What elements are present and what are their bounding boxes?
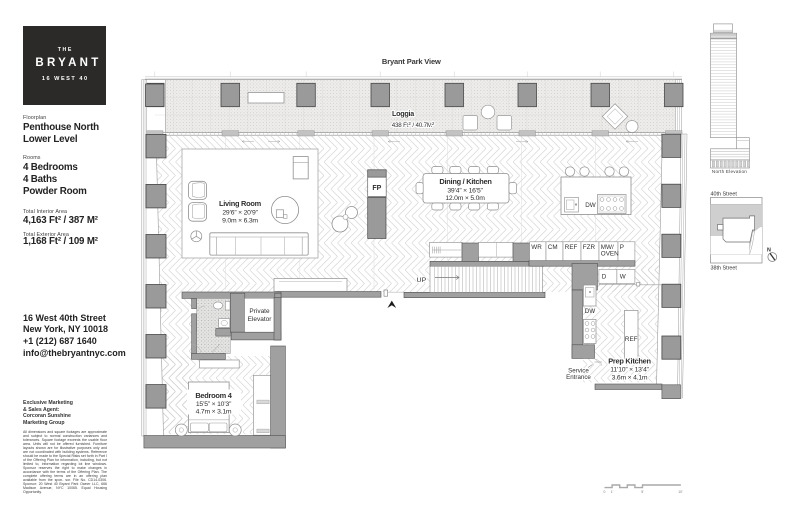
svg-text:11’10” × 13’4”: 11’10” × 13’4” (610, 367, 649, 374)
svg-text:Bryant Park View: Bryant Park View (382, 57, 441, 66)
svg-text:38th Street: 38th Street (711, 266, 738, 272)
svg-text:Dining / Kitchen: Dining / Kitchen (439, 177, 492, 186)
svg-text:REF: REF (625, 336, 638, 343)
svg-text:5’: 5’ (641, 490, 644, 494)
svg-text:0: 0 (604, 490, 606, 494)
svg-text:40th Street: 40th Street (711, 191, 738, 197)
svg-text:4.7m × 3.1m: 4.7m × 3.1m (196, 408, 232, 415)
svg-text:12.0m × 5.0m: 12.0m × 5.0m (445, 195, 485, 202)
svg-text:P: P (620, 244, 624, 251)
svg-text:Prep Kitchen: Prep Kitchen (608, 356, 651, 365)
svg-text:FP: FP (372, 185, 381, 192)
svg-text:DW: DW (585, 308, 596, 315)
svg-text:1’: 1’ (611, 490, 614, 494)
svg-text:Entrance: Entrance (566, 374, 591, 381)
svg-text:9.0m × 6.3m: 9.0m × 6.3m (222, 218, 258, 225)
svg-text:W: W (620, 274, 626, 281)
svg-text:D: D (602, 274, 607, 281)
svg-text:OVEN: OVEN (601, 251, 619, 258)
svg-text:Elevator: Elevator (248, 316, 273, 323)
svg-text:Living Room: Living Room (219, 199, 262, 208)
svg-text:N: N (767, 248, 771, 254)
svg-text:Private: Private (249, 308, 270, 315)
svg-text:DW: DW (585, 202, 596, 209)
svg-text:REF: REF (565, 244, 578, 251)
svg-text:WR: WR (531, 244, 542, 251)
svg-text:39’4” × 16’5”: 39’4” × 16’5” (447, 188, 483, 195)
svg-text:Bedroom 4: Bedroom 4 (195, 391, 232, 400)
svg-text:15’5” × 10’3”: 15’5” × 10’3” (196, 401, 232, 408)
svg-text:CM: CM (548, 244, 558, 251)
svg-text:29’6” × 20’9”: 29’6” × 20’9” (222, 209, 258, 216)
svg-text:10’: 10’ (678, 490, 683, 494)
svg-text:UP: UP (416, 277, 426, 284)
svg-text:Loggia: Loggia (392, 109, 415, 118)
svg-text:3.6m × 4.1m: 3.6m × 4.1m (612, 375, 648, 382)
svg-text:FZR: FZR (583, 244, 596, 251)
svg-text:North Elevation: North Elevation (712, 169, 747, 174)
svg-text:438 Ft2 / 40.7M2: 438 Ft2 / 40.7M2 (392, 121, 435, 129)
